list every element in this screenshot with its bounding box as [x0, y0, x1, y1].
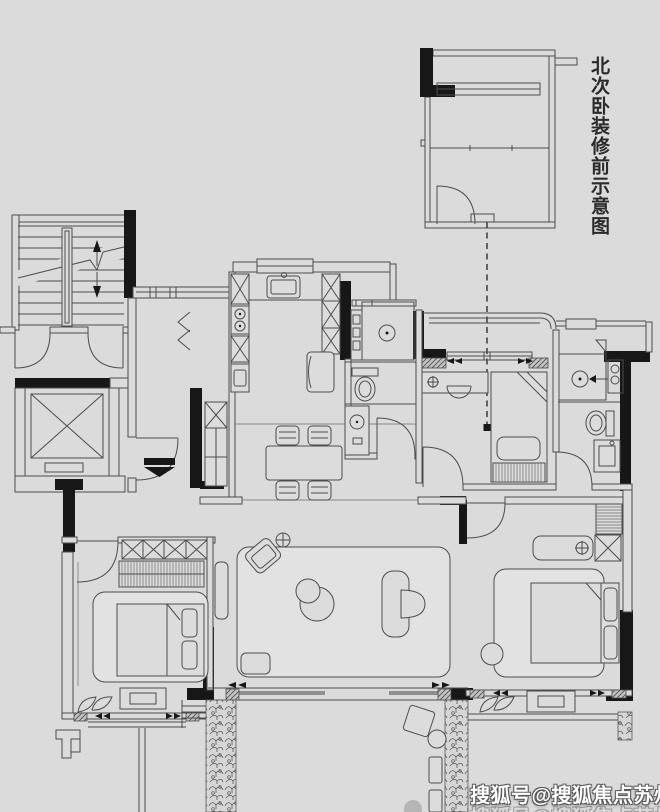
pillow [604, 588, 617, 621]
planter-box [429, 757, 442, 783]
tv-cabinet [215, 562, 228, 619]
planting-strip-right [445, 700, 468, 812]
planting-patch [618, 712, 632, 740]
pillow [497, 437, 540, 460]
living-room [208, 533, 468, 700]
inset-top-wall [433, 50, 555, 56]
plant [78, 697, 112, 712]
corner-shelf [596, 340, 606, 352]
bathroom-public [345, 302, 416, 456]
dining-chair [308, 481, 331, 500]
vanity [345, 406, 369, 455]
garden-wall [139, 728, 145, 812]
pillow [604, 626, 617, 659]
bedroom-right [467, 503, 622, 712]
bath-north-window [566, 319, 596, 329]
stove [231, 306, 249, 334]
floorplan-drawing [0, 0, 660, 812]
pillow [182, 609, 197, 637]
refrigerator [307, 352, 334, 392]
shower-area [559, 354, 606, 400]
pillow [182, 641, 197, 669]
dining-table [266, 446, 342, 480]
pouf [241, 653, 270, 674]
watermark: 搜狐号@搜狐焦点苏州站 [470, 779, 660, 808]
kitchen-sink [267, 276, 300, 298]
sliding-door-panel [238, 691, 325, 695]
stool [428, 730, 446, 748]
bed-north [491, 372, 547, 482]
staircase [12, 215, 130, 330]
bench [527, 691, 575, 712]
bathroom-north [556, 340, 623, 487]
bathroom-north-door-arc [556, 452, 592, 487]
side-table [481, 643, 503, 665]
inset-title: 北次卧装修前示意图 [582, 56, 608, 236]
inset-bottom-wall [425, 222, 555, 228]
elevator-lobby [0, 327, 129, 388]
planting-strip-left [206, 700, 236, 812]
eave-lines [423, 313, 646, 329]
dining-chair [308, 426, 331, 445]
ground-dot [404, 800, 422, 812]
inset-partition-line [430, 145, 549, 151]
inset-right-wall [549, 56, 555, 228]
bench [120, 688, 166, 709]
plant [480, 697, 514, 712]
inset-detail-plan [420, 48, 577, 228]
inset-wall-stub [555, 58, 577, 65]
bedroom-north-door-arc [423, 447, 463, 487]
toilet-tank [606, 411, 614, 436]
bedroom-left [56, 540, 208, 758]
shower-area [362, 302, 414, 360]
kitchen [231, 273, 340, 393]
detail-connector [484, 222, 491, 431]
entrance-arrow [144, 467, 175, 477]
outdoor-pier [56, 730, 80, 758]
inset-left-wall [425, 97, 430, 228]
dining-area [266, 426, 342, 500]
entry-foyer [136, 312, 227, 486]
planter-box [429, 790, 442, 812]
floorplan-page: 北次卧装修前示意图 搜狐号@搜狐焦点苏州站 搜狐号@搜狐焦点苏州站 [0, 0, 660, 812]
bedroom-right-door-arc [467, 503, 505, 538]
closet-chevrons [178, 312, 190, 350]
coffee-table-small [296, 579, 320, 603]
stair-handrail [62, 228, 72, 326]
elevator [15, 388, 125, 492]
connector-end-dot [484, 424, 491, 431]
dining-chair [276, 426, 299, 445]
inset-door-arc [437, 186, 475, 224]
washing-machine [594, 440, 620, 472]
sliding-door-panel [389, 691, 441, 695]
lobby-door-left [15, 333, 50, 368]
stair-up-arrow [93, 240, 101, 252]
dining-chair [276, 481, 299, 500]
lobby-door-right [88, 333, 123, 368]
toilet-tank [352, 368, 378, 376]
drain-arrow [589, 375, 596, 383]
bedroom-left-door-arc [77, 541, 118, 582]
